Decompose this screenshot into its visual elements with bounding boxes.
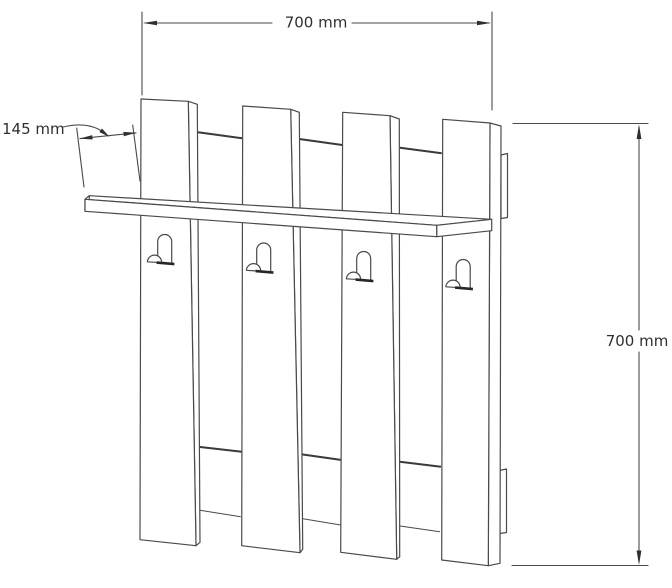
arrow-left-icon	[143, 21, 157, 26]
arrow-right-icon	[477, 21, 491, 26]
arrow-up-icon	[637, 125, 642, 140]
depth-dimension-label: 145 mm	[2, 120, 65, 138]
wall-rail-top-end	[501, 154, 508, 219]
leader-line	[63, 125, 106, 134]
coat-rack-drawing	[85, 99, 508, 566]
slat-1	[140, 99, 200, 546]
technical-drawing: 700 mm 145 mm 700 mm	[0, 0, 672, 588]
slat-4	[442, 119, 501, 565]
drawing-canvas: 700 mm 145 mm 700 mm	[0, 0, 672, 588]
slat-3	[341, 112, 400, 559]
depth-dimension: 145 mm	[2, 120, 140, 187]
arrow-down-icon	[637, 551, 642, 566]
width-dimension: 700 mm	[142, 12, 492, 110]
width-dimension-label: 700 mm	[285, 14, 348, 32]
depth-extension-left	[77, 128, 84, 187]
height-dimension-label: 700 mm	[606, 332, 669, 350]
slat-2	[242, 106, 303, 553]
height-dimension: 700 mm	[512, 124, 668, 566]
